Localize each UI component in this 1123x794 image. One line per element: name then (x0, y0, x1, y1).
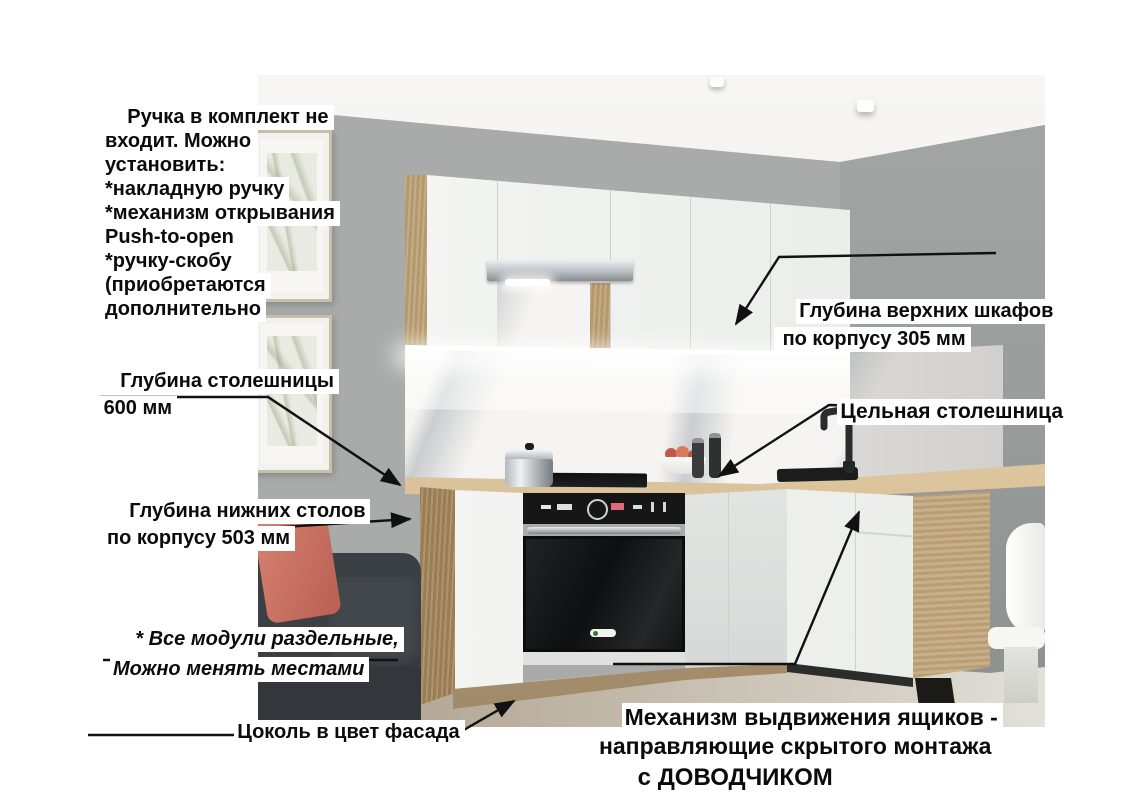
label-plinth-note-text: Цоколь в цвет фасада (234, 720, 464, 745)
oven-display (541, 505, 551, 509)
cabinet-seam (855, 493, 856, 675)
cabinet-seam (690, 197, 691, 352)
oven-display (557, 504, 572, 510)
oven-handle (527, 527, 681, 534)
oven-base-strip (523, 652, 685, 665)
oven (523, 493, 685, 665)
ceiling-light-icon (857, 100, 874, 112)
chair-seat (988, 627, 1045, 649)
range-hood (487, 260, 633, 281)
oven-logo-dot (593, 631, 598, 636)
label-base-cabinet-depth-text: Глубина нижних столов по корпусу 503 мм (104, 499, 370, 551)
label-countertop-depth: Глубина столешницы 600 мм (95, 341, 339, 449)
hood-light (505, 279, 550, 286)
label-solid-countertop-text: Цельная столешница (837, 399, 1068, 425)
pot-knob (525, 443, 534, 450)
label-plinth-note: Цоколь в цвет фасада (212, 693, 465, 771)
label-upper-cabinet-depth-text: Глубина верхних шкафов по корпусу 305 мм (774, 299, 1058, 352)
ceiling-light-icon (710, 77, 724, 87)
chair-back (1006, 523, 1045, 635)
annotated-kitchen-image: Ручка в комплект не входит. Можно устано… (0, 0, 1123, 794)
pot-body (505, 459, 553, 487)
cooking-pot (505, 443, 553, 487)
grinder (692, 438, 704, 478)
upper-cabinet-side-panel (405, 175, 427, 348)
label-countertop-depth-text: Глубина столешницы 600 мм (95, 369, 339, 421)
label-soft-close-text: с ДОВОДЧИКОМ (635, 763, 838, 793)
label-base-cabinet-depth: Глубина нижних столов по корпусу 503 мм (104, 471, 370, 579)
label-soft-close: с ДОВОДЧИКОМ (608, 733, 838, 794)
grinder (709, 433, 721, 478)
oven-display (611, 503, 624, 510)
label-handle-note-text: Ручка в комплект не входит. Можно устано… (102, 105, 340, 322)
chair-base (1004, 647, 1038, 703)
spice-grinders (692, 433, 722, 478)
oven-dial-icon (587, 499, 608, 520)
label-upper-cabinet-depth: Глубина верхних шкафов по корпусу 305 мм (774, 269, 1058, 381)
cabinet-seam (728, 492, 729, 668)
label-modules-note-text: * Все модули раздельные, Можно менять ме… (110, 627, 404, 682)
oven-display (663, 502, 666, 512)
label-solid-countertop: Цельная столешница (814, 371, 1068, 452)
oven-display (651, 502, 654, 512)
label-handle-note: Ручка в комплект не входит. Можно устано… (102, 81, 340, 345)
cabinet-seam (770, 203, 771, 353)
oven-display (633, 505, 642, 509)
hood-recess-trim (590, 283, 610, 350)
